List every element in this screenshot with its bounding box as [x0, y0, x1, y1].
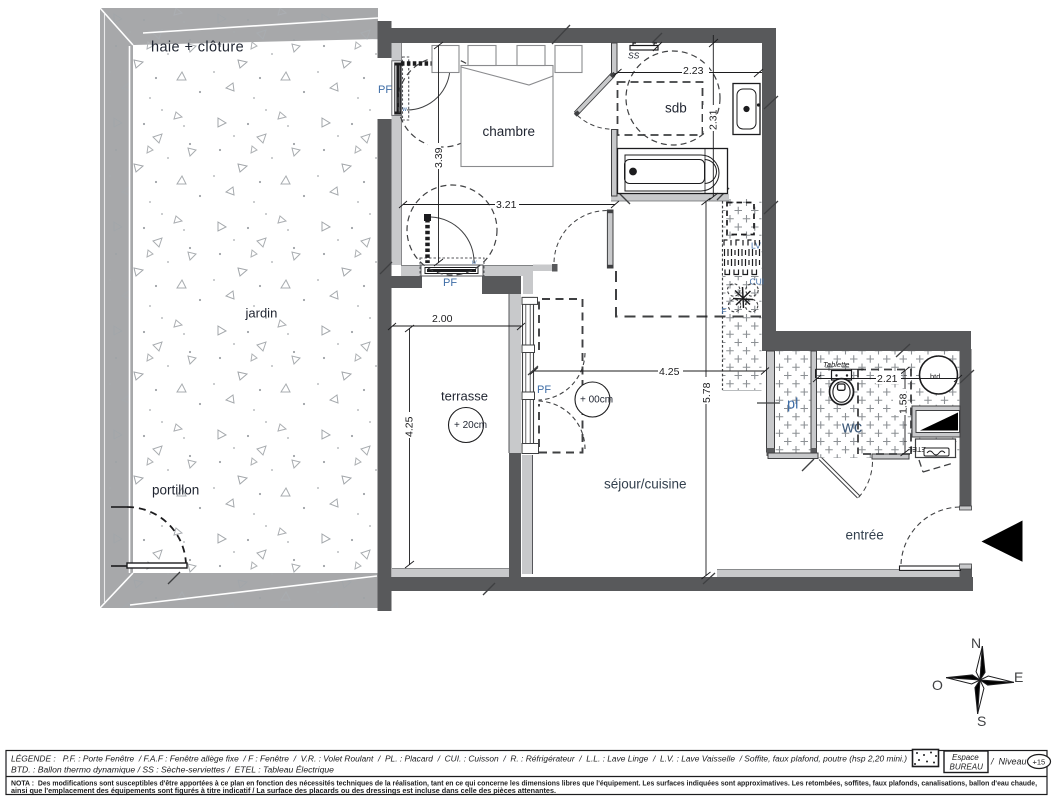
- svg-text:2.21: 2.21: [877, 373, 898, 385]
- svg-text:F: F: [722, 306, 727, 316]
- svg-text:btd: btd: [930, 372, 940, 381]
- svg-text:w: w: [403, 107, 408, 113]
- svg-text:2.00: 2.00: [432, 313, 453, 325]
- svg-text:portillon: portillon: [152, 483, 199, 498]
- svg-text:haie + clôture: haie + clôture: [151, 39, 244, 55]
- svg-text:3.39: 3.39: [433, 147, 445, 168]
- svg-text:LÉGENDE : P.F. : Porte Fenêt: LÉGENDE : P.F. : Porte Fenêtre / F.A.F :…: [11, 754, 907, 764]
- svg-text:ainsi que l'emplacement des éq: ainsi que l'emplacement des équipements …: [11, 786, 556, 795]
- svg-text:N: N: [971, 635, 981, 651]
- svg-text:3.21: 3.21: [496, 199, 517, 211]
- svg-text:2.23: 2.23: [683, 65, 704, 77]
- svg-text:Espace: Espace: [952, 753, 979, 762]
- svg-text:5.78: 5.78: [701, 382, 713, 403]
- svg-text:jardin: jardin: [245, 306, 278, 321]
- svg-text:PF: PF: [378, 84, 392, 96]
- svg-text:1.58: 1.58: [898, 393, 910, 414]
- svg-text:entrée: entrée: [846, 527, 884, 542]
- svg-text:séjour/cuisine: séjour/cuisine: [604, 477, 687, 492]
- svg-text:S: S: [977, 713, 986, 729]
- svg-text:+15: +15: [1033, 758, 1046, 767]
- svg-text:sdb: sdb: [665, 100, 687, 115]
- svg-text:wc: wc: [841, 419, 862, 437]
- svg-text:E: E: [1014, 669, 1023, 685]
- svg-text:CUI: CUI: [750, 277, 765, 287]
- svg-text:4.25: 4.25: [404, 416, 416, 437]
- svg-text:4.25: 4.25: [659, 366, 680, 378]
- svg-text:PF: PF: [537, 384, 551, 396]
- svg-text:O: O: [932, 677, 943, 693]
- svg-text:BUREAU: BUREAU: [950, 763, 984, 772]
- svg-text:SS: SS: [628, 51, 640, 61]
- svg-text:2.31: 2.31: [708, 109, 720, 130]
- svg-text:Tablette: Tablette: [823, 360, 849, 369]
- svg-text:/ Niveau: / Niveau: [990, 757, 1027, 767]
- svg-text:chambre: chambre: [483, 124, 536, 139]
- svg-text:pl: pl: [787, 397, 798, 413]
- svg-text:PF: PF: [443, 277, 457, 289]
- svg-text:ETEL: ETEL: [908, 445, 926, 452]
- svg-text:+ 20cm: + 20cm: [454, 420, 487, 431]
- svg-text:BTD. : Ballon thermo dynamique: BTD. : Ballon thermo dynamique / SS : Sè…: [11, 765, 334, 775]
- svg-text:terrasse: terrasse: [441, 389, 488, 404]
- svg-text:+ 00cm: + 00cm: [580, 395, 613, 406]
